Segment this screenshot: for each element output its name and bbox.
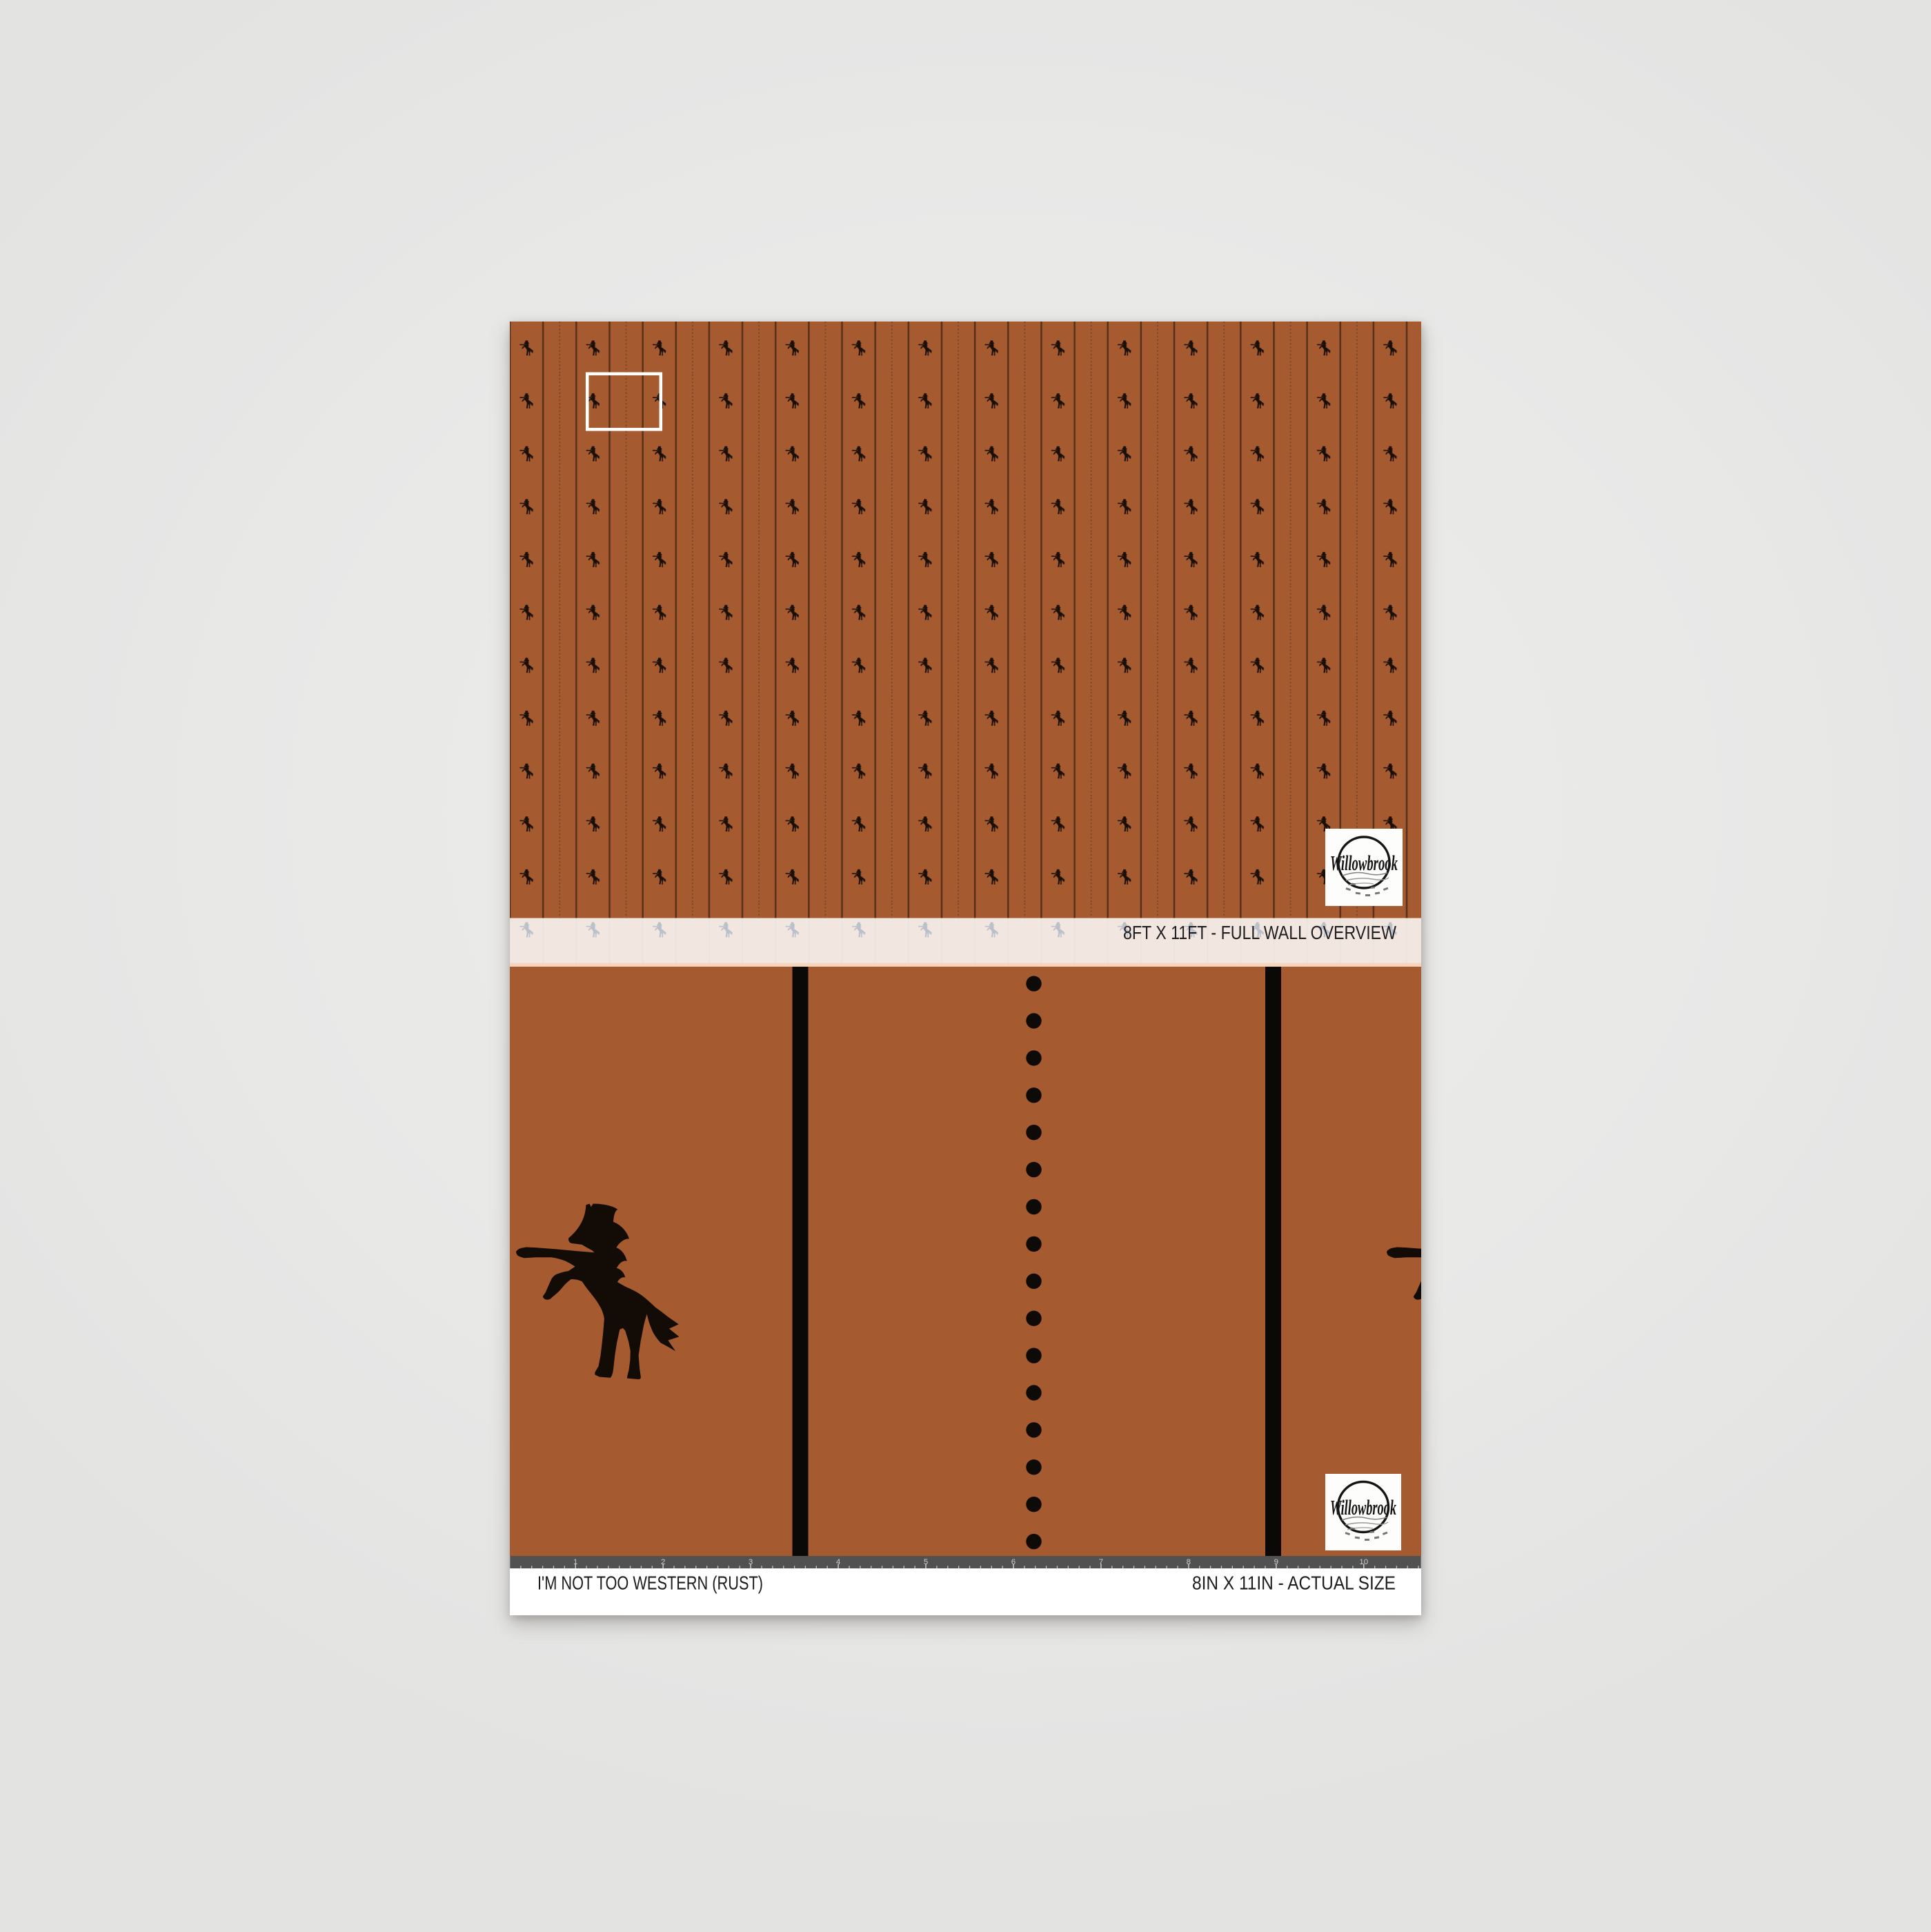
svg-text:5: 5 <box>924 1558 928 1566</box>
svg-text:9: 9 <box>1274 1558 1278 1566</box>
svg-text:3: 3 <box>749 1558 753 1566</box>
svg-text:8IN X 11IN - ACTUAL SIZE: 8IN X 11IN - ACTUAL SIZE <box>1192 1572 1396 1593</box>
svg-text:6: 6 <box>1011 1558 1016 1566</box>
svg-text:7: 7 <box>1099 1558 1103 1566</box>
svg-text:8FT X 11FT - FULL WALL OVERVIE: 8FT X 11FT - FULL WALL OVERVIEW <box>1123 922 1396 943</box>
svg-text:8: 8 <box>1187 1558 1191 1566</box>
svg-text:2: 2 <box>661 1558 665 1566</box>
svg-text:I'M NOT TOO WESTERN (RUST): I'M NOT TOO WESTERN (RUST) <box>537 1572 763 1593</box>
svg-text:4: 4 <box>836 1558 841 1566</box>
svg-text:Willowbrook: Willowbrook <box>1330 1495 1396 1519</box>
svg-text:10: 10 <box>1359 1558 1368 1566</box>
svg-text:Willowbrook: Willowbrook <box>1330 851 1398 875</box>
svg-text:1: 1 <box>573 1558 577 1566</box>
